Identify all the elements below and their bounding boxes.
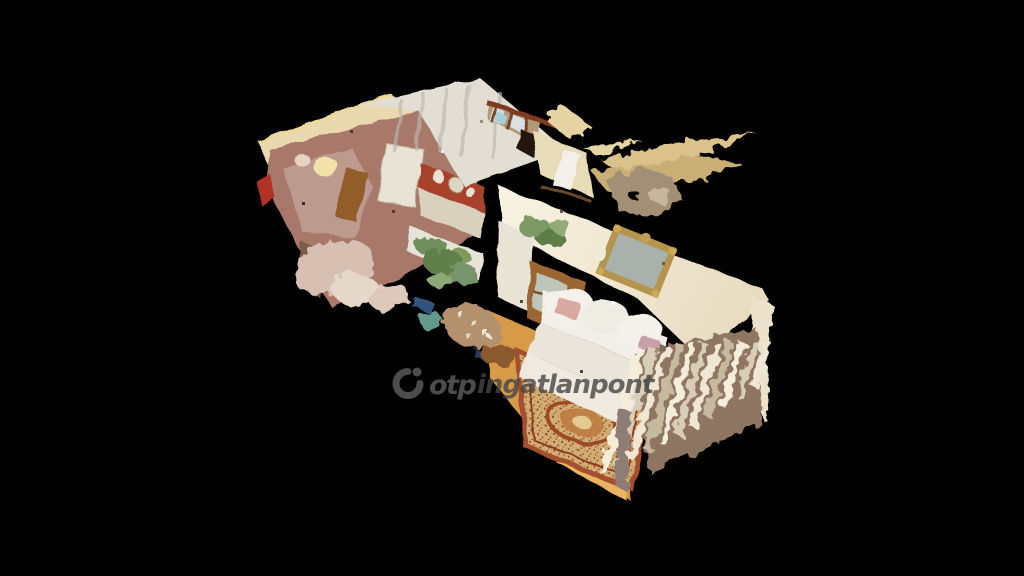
- watermark-product-text: ingatlanpont: [477, 370, 656, 400]
- otp-logo-icon: [396, 368, 422, 396]
- watermark: otp ingatlanpont: [396, 368, 656, 402]
- watermark-brand-text: otp: [429, 370, 476, 401]
- tour-viewport: otp ingatlanpont: [0, 0, 1024, 576]
- dollhouse-3d-view[interactable]: otp ingatlanpont: [0, 0, 1024, 576]
